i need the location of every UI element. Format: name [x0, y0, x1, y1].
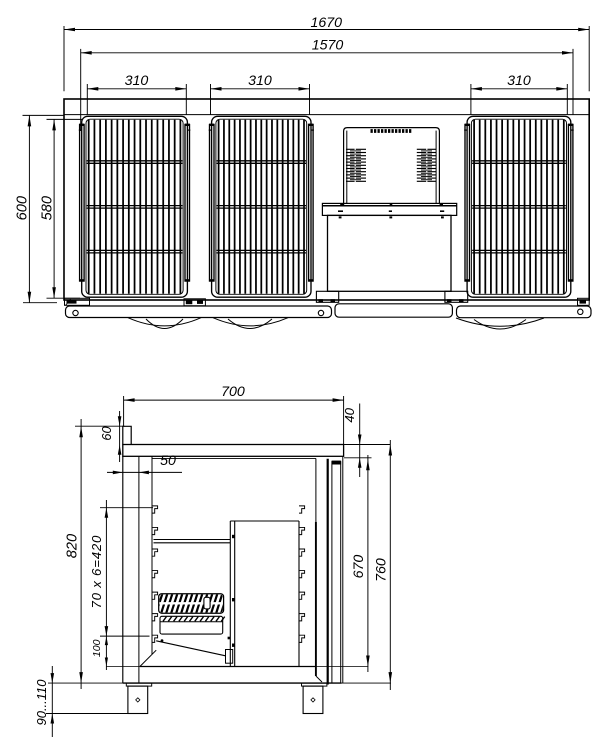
svg-text:310: 310	[125, 73, 149, 89]
svg-text:310: 310	[507, 73, 531, 89]
svg-text:820: 820	[65, 534, 81, 558]
svg-text:1570: 1570	[312, 38, 344, 54]
svg-text:60: 60	[99, 426, 114, 441]
svg-text:760: 760	[374, 558, 390, 582]
svg-text:310: 310	[248, 73, 272, 89]
svg-text:50: 50	[160, 453, 176, 469]
svg-text:600: 600	[14, 196, 30, 220]
svg-text:70 х 6=420: 70 х 6=420	[89, 535, 104, 609]
svg-text:670: 670	[351, 555, 367, 579]
svg-text:100: 100	[91, 639, 103, 657]
svg-text:700: 700	[221, 384, 245, 400]
svg-text:40: 40	[342, 407, 357, 422]
svg-text:90...110: 90...110	[34, 679, 49, 726]
svg-text:1670: 1670	[311, 15, 343, 31]
svg-text:580: 580	[39, 196, 55, 220]
